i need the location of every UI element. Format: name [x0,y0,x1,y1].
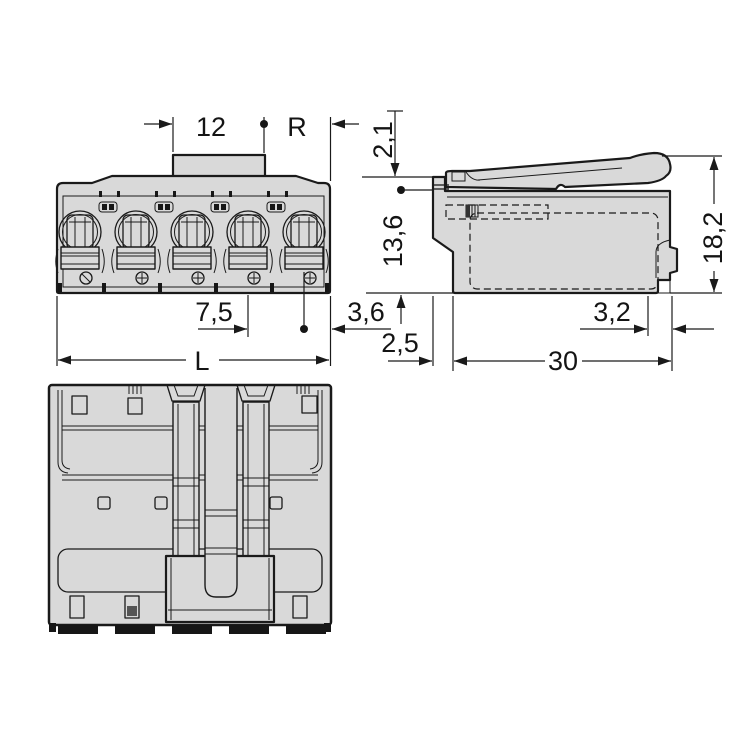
lever-slot [205,388,237,597]
dim-label-coding-width: 12 [196,112,226,142]
reference-dot [300,325,308,333]
reference-dot [260,120,268,128]
bottom-corner-notch [658,280,670,293]
lever [446,153,671,189]
dim-label-height: 18,2 [698,212,728,265]
dim-label-notch: 3,2 [593,297,631,327]
foot-hole-fill [127,606,137,616]
front-view [56,155,330,293]
technical-drawing-page: 12 R 7,5 3,6 L 2,1 13,6 18,2 [0,0,750,750]
dim-label-edge-offset: 3,6 [347,297,385,327]
dim-label-depth: 30 [548,346,578,376]
dim-label-total-length: L [194,346,209,376]
side-view [433,153,677,293]
dim-label-top-offset: 2,1 [368,121,398,159]
dim-label-pitch: 7,5 [195,297,233,327]
reference-dot [397,186,405,194]
lever-channel [166,388,274,622]
dim-label-pin-ref: R [287,112,307,142]
dim-label-face-offset: 2,5 [381,328,419,358]
front-housing [57,176,330,293]
dim-label-pin-to-bottom: 13,6 [378,215,408,268]
technical-drawing: 12 R 7,5 3,6 L 2,1 13,6 18,2 [0,0,750,750]
bottom-view [49,385,331,634]
